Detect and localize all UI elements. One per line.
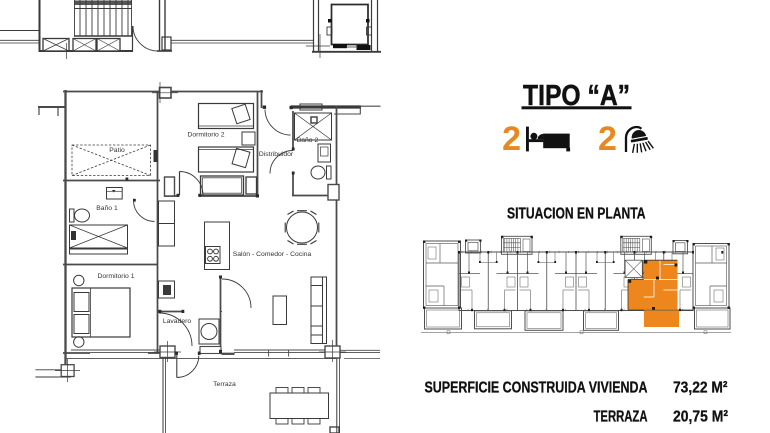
svg-text:20,75 M²: 20,75 M² [673, 409, 728, 426]
svg-text:Salón - Comedor - Cocina: Salón - Comedor - Cocina [233, 251, 312, 258]
svg-text:TERRAZA: TERRAZA [594, 409, 648, 426]
svg-text:2: 2 [502, 120, 521, 158]
svg-text:Dormitorio 1: Dormitorio 1 [97, 273, 134, 280]
svg-text:SUPERFICIE CONSTRUIDA VIVIENDA: SUPERFICIE CONSTRUIDA VIVIENDA [425, 380, 648, 397]
svg-text:Dormitorio 2: Dormitorio 2 [187, 132, 224, 139]
svg-text:Patio: Patio [109, 147, 125, 154]
svg-text:Lavadero: Lavadero [163, 318, 192, 325]
svg-text:Terraza: Terraza [213, 381, 236, 388]
svg-text:73,22 M²: 73,22 M² [673, 380, 728, 397]
svg-text:2: 2 [598, 120, 617, 158]
svg-text:Distribuidor: Distribuidor [259, 151, 294, 158]
svg-text:Baño 1: Baño 1 [96, 205, 118, 212]
svg-text:SITUACION EN PLANTA: SITUACION EN PLANTA [507, 205, 646, 222]
svg-text:Baño 2: Baño 2 [297, 137, 319, 144]
